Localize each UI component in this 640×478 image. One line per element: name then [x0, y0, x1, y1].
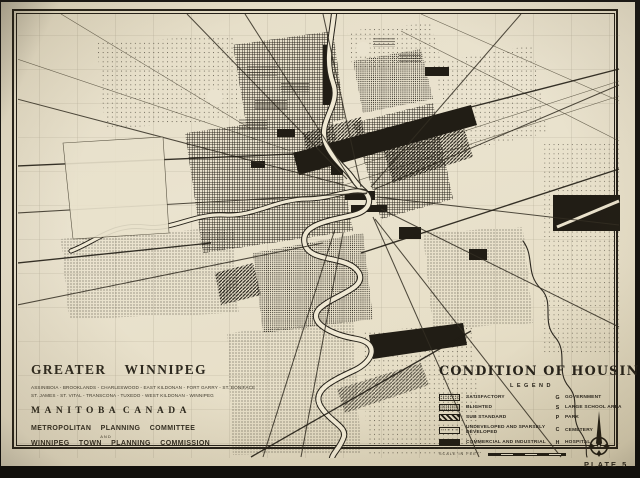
compass-rose-icon: [579, 409, 619, 461]
country-label: CANADA: [123, 406, 191, 416]
plate-number: PLATE 5: [584, 460, 628, 469]
legend-symbol-letter: H: [550, 440, 565, 446]
title-block: GREATER WINNIPEG ASSINIBOIA - BROOKLANDS…: [31, 363, 203, 447]
committee-line-1: METROPOLITAN PLANNING COMMITTEE: [31, 425, 203, 432]
legend-item-label: COMMERCIAL AND INDUSTRIAL: [466, 440, 550, 446]
region-row: MANITOBA CANADA: [31, 406, 191, 416]
scale-label: SCALE IN FEET: [439, 452, 480, 456]
legend-title: CONDITION OF HOUSING: [439, 364, 621, 379]
municipalities-line-1: ASSINIBOIA - BROOKLANDS - CHARLESWOOD - …: [31, 385, 203, 391]
legend-item-label: UNDEVELOPED AND SPARSELY DEVELOPED: [466, 425, 550, 437]
province-label: MANITOBA: [31, 406, 120, 416]
legend-item-label: SATISFACTORY: [466, 395, 550, 401]
legend-swatch-blighted: [439, 404, 460, 411]
legend-symbol-letter: P: [550, 415, 565, 421]
legend-item-label: SUB STANDARD: [466, 415, 550, 421]
map-plate-page: GREATER WINNIPEG ASSINIBOIA - BROOKLANDS…: [1, 2, 635, 466]
legend-symbol-letter: G: [550, 395, 565, 401]
legend-subtitle: LEGEND: [457, 383, 607, 389]
committee-line-2: WINNIPEG TOWN PLANNING COMMISSION: [31, 440, 203, 447]
scale-bar: [488, 453, 566, 457]
legend-item-label: BLIGHTED: [466, 405, 550, 411]
legend-symbol-letter: S: [550, 405, 565, 411]
legend-symbol-letter: C: [550, 427, 565, 433]
municipalities-line-2: ST. JAMES - ST. VITAL - TRANSCONA - TUXE…: [31, 393, 203, 399]
legend-swatch-undeveloped: [439, 427, 460, 434]
legend-swatch-substandard: [439, 414, 460, 421]
legend-swatch-satisfactory: [439, 394, 460, 401]
committee-conjunction: AND: [31, 434, 181, 439]
legend-swatch-commercial: [439, 439, 460, 446]
photo-background: GREATER WINNIPEG ASSINIBOIA - BROOKLANDS…: [0, 0, 640, 478]
legend-symbol-label: GOVERNMENT: [565, 395, 625, 400]
map-title: GREATER WINNIPEG: [31, 363, 196, 379]
